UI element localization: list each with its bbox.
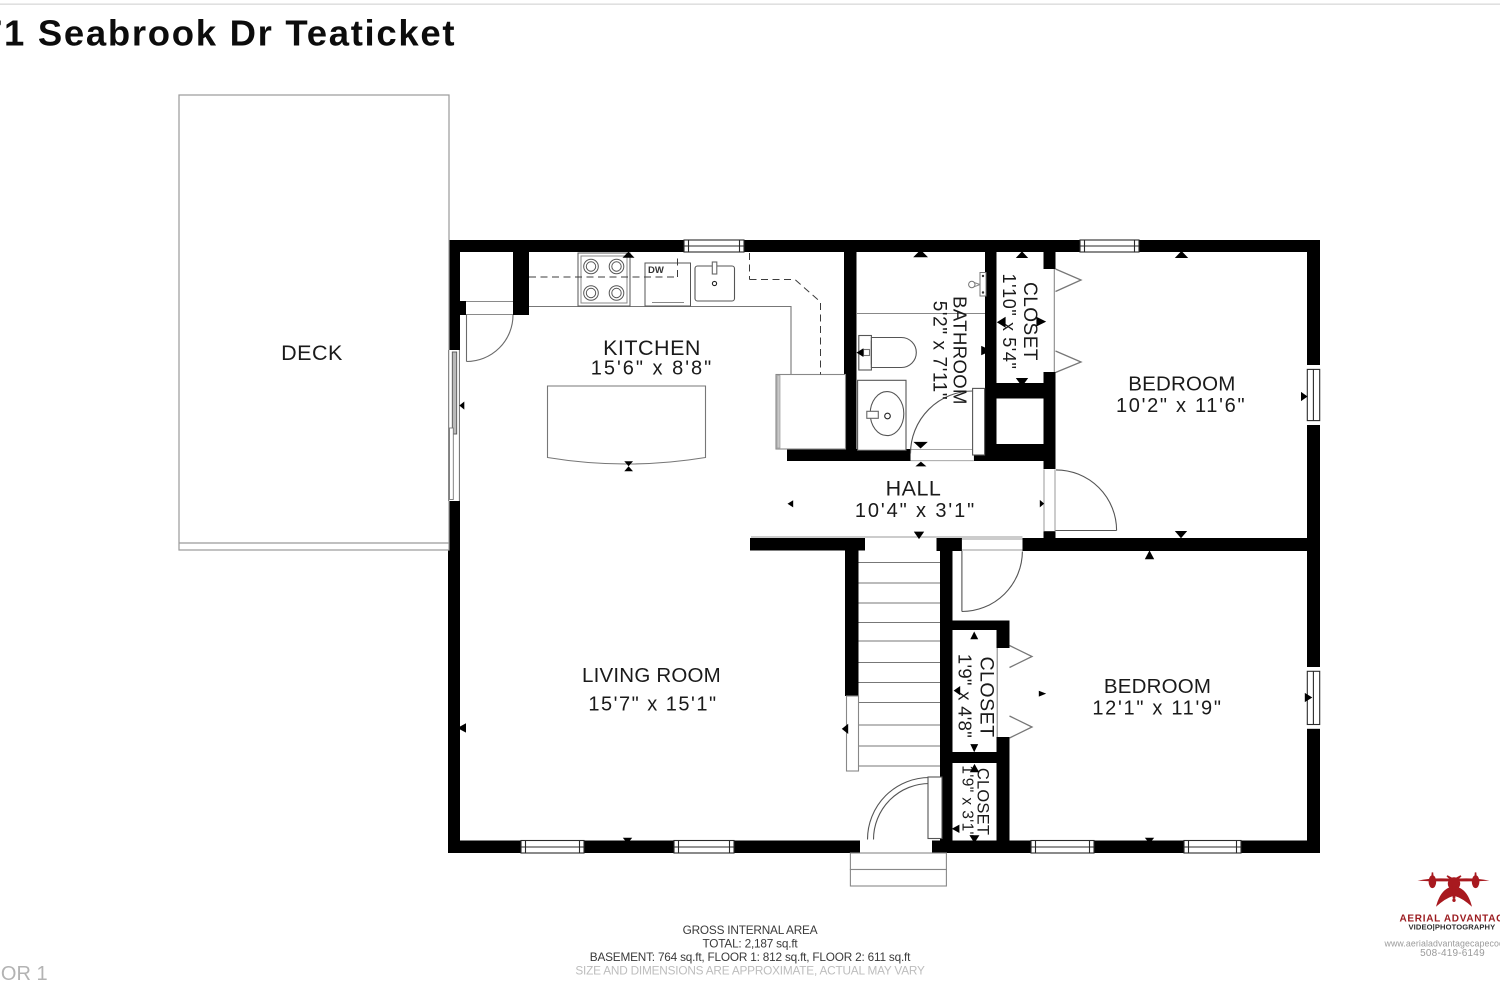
svg-text:FLOOR 1: FLOOR 1	[0, 963, 48, 985]
svg-text:71 Seabrook Dr Teaticket: 71 Seabrook Dr Teaticket	[0, 13, 456, 54]
svg-text:15'6" x 8'8": 15'6" x 8'8"	[591, 358, 714, 380]
svg-text:BATHROOM: BATHROOM	[949, 296, 970, 405]
svg-text:10'2" x 11'6": 10'2" x 11'6"	[1116, 395, 1246, 417]
svg-text:12'1" x 11'9": 12'1" x 11'9"	[1092, 698, 1222, 720]
svg-text:BEDROOM: BEDROOM	[1104, 675, 1211, 698]
svg-text:HALL: HALL	[886, 477, 942, 501]
svg-text:BEDROOM: BEDROOM	[1128, 373, 1235, 396]
svg-text:GROSS INTERNAL AREA: GROSS INTERNAL AREA	[683, 923, 818, 937]
svg-text:508-419-6149: 508-419-6149	[1420, 948, 1485, 959]
svg-text:SIZE AND DIMENSIONS ARE APPROX: SIZE AND DIMENSIONS ARE APPROXIMATE, ACT…	[575, 964, 925, 978]
svg-text:10'4" x 3'1": 10'4" x 3'1"	[855, 500, 976, 522]
svg-text:www.aerialadvantagecapecod.com: www.aerialadvantagecapecod.com	[1384, 939, 1500, 949]
svg-text:BASEMENT: 764 sq.ft, FLOOR 1:: BASEMENT: 764 sq.ft, FLOOR 1: 812 sq.ft,…	[590, 950, 911, 964]
svg-text:DW: DW	[648, 265, 664, 276]
svg-text:LIVING ROOM: LIVING ROOM	[582, 664, 721, 687]
svg-text:VIDEO|PHOTOGRAPHY: VIDEO|PHOTOGRAPHY	[1409, 923, 1496, 932]
svg-text:15'7" x 15'1": 15'7" x 15'1"	[588, 694, 717, 716]
svg-text:TOTAL: 2,187 sq.ft: TOTAL: 2,187 sq.ft	[703, 937, 799, 951]
svg-text:DECK: DECK	[281, 341, 343, 365]
svg-text:1'9" x 4'8": 1'9" x 4'8"	[955, 654, 976, 738]
svg-text:5'2" x 7'11": 5'2" x 7'11"	[929, 301, 950, 400]
svg-text:1'9" x 3'1": 1'9" x 3'1"	[959, 765, 976, 837]
svg-text:KITCHEN: KITCHEN	[603, 336, 701, 360]
svg-text:CLOSET: CLOSET	[975, 656, 997, 737]
